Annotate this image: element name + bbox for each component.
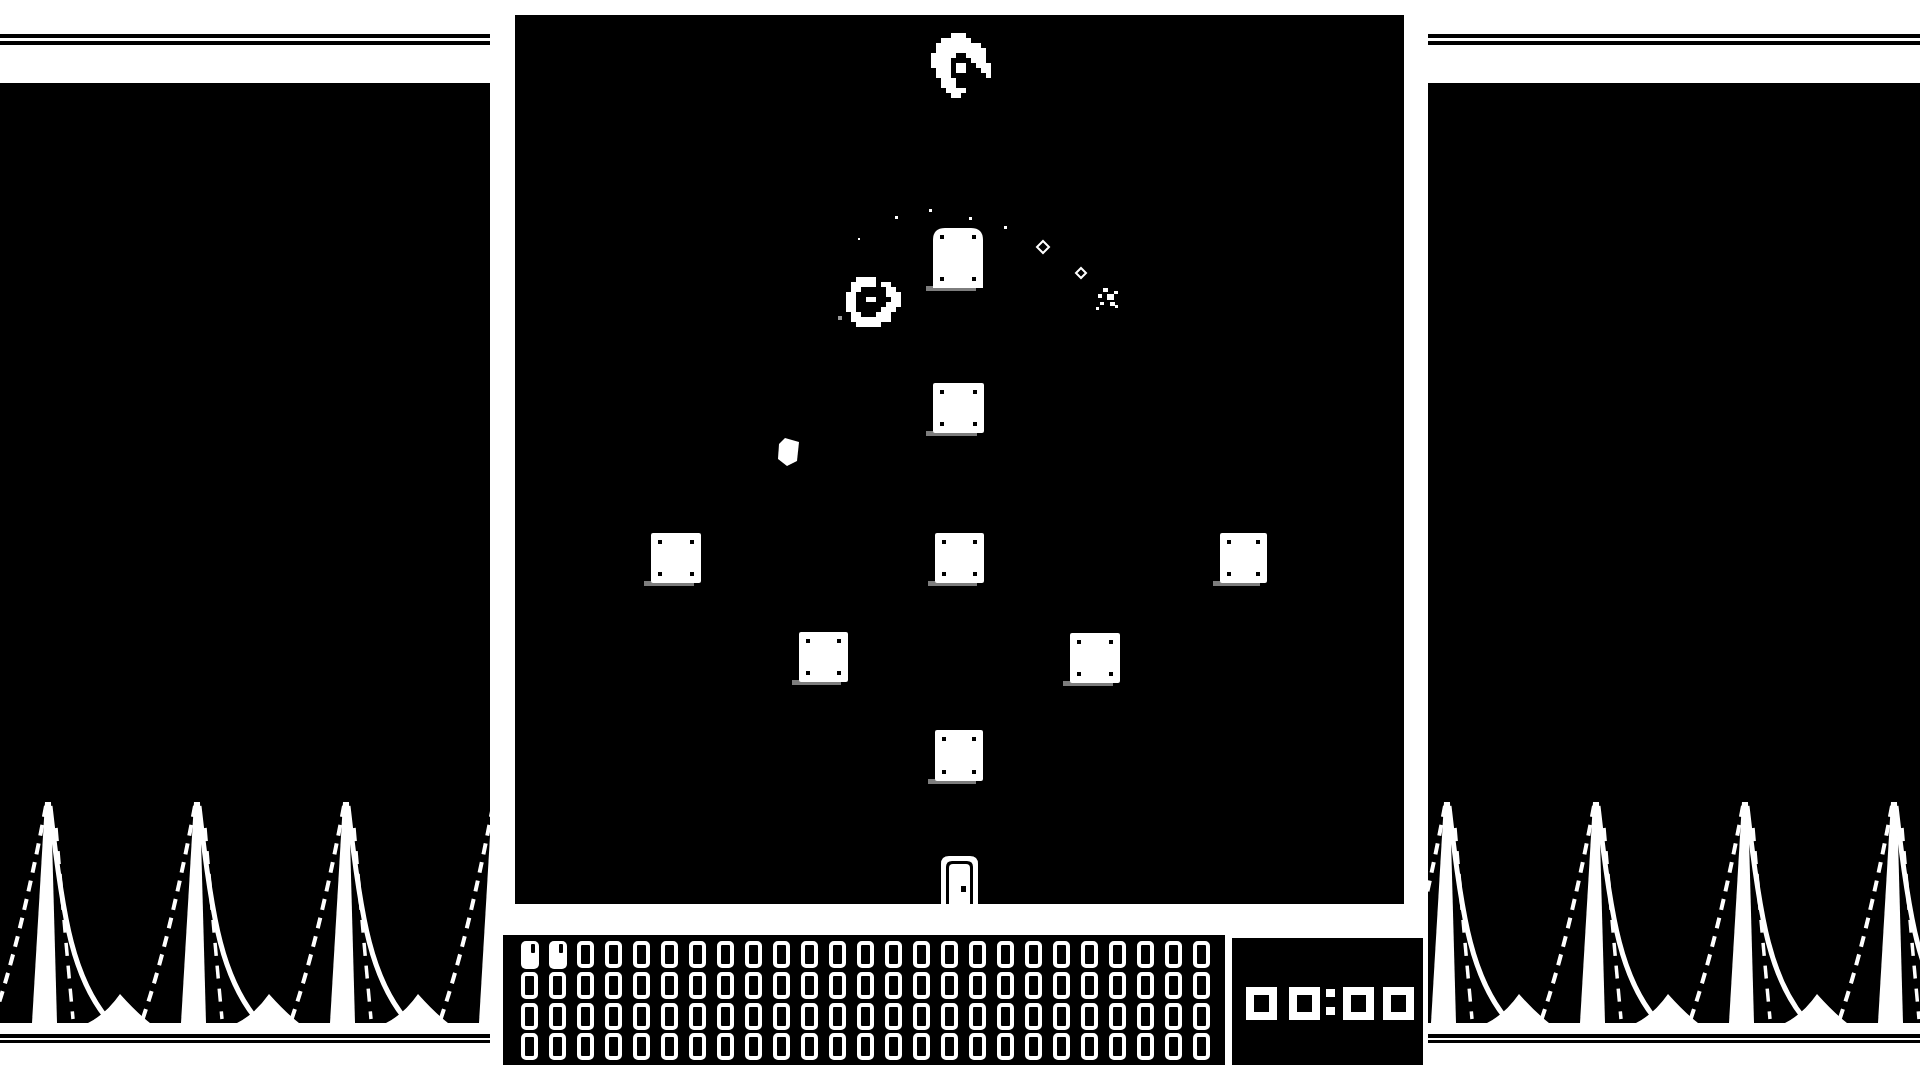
pixel bbox=[871, 282, 876, 287]
counter-zero bbox=[1137, 1033, 1154, 1060]
rivet bbox=[837, 671, 841, 675]
pixel bbox=[871, 322, 876, 327]
timer-colon-dot bbox=[1326, 989, 1335, 997]
game-screen: 00:00 bbox=[0, 0, 1920, 1080]
pixel bbox=[981, 53, 986, 58]
counter-zero bbox=[1053, 941, 1070, 968]
counter-zero-filled bbox=[521, 941, 539, 969]
top-stripe bbox=[1428, 34, 1920, 38]
counter-zero bbox=[773, 972, 790, 999]
pixel bbox=[946, 63, 951, 68]
counter-zero bbox=[1109, 1033, 1126, 1060]
counter-zero bbox=[913, 1033, 930, 1060]
block bbox=[1063, 633, 1120, 686]
counter-zero bbox=[717, 1003, 734, 1030]
pixel bbox=[856, 277, 861, 282]
pixel bbox=[941, 78, 946, 83]
counter-zero bbox=[913, 1003, 930, 1030]
timer-digit bbox=[1289, 987, 1320, 1020]
counter-zero bbox=[829, 941, 846, 968]
counter-zero bbox=[1025, 1003, 1042, 1030]
pixel bbox=[956, 48, 961, 53]
rivet bbox=[658, 572, 662, 576]
pixel bbox=[976, 53, 981, 58]
block bbox=[928, 730, 983, 784]
pixel bbox=[866, 297, 871, 302]
pixel bbox=[891, 297, 896, 302]
counter-zero bbox=[997, 1033, 1014, 1060]
pixel bbox=[891, 307, 896, 312]
pixel bbox=[871, 297, 876, 302]
counter-zero bbox=[1053, 1033, 1070, 1060]
spike-mountains bbox=[0, 83, 490, 1023]
rivet bbox=[1256, 540, 1260, 544]
pixel bbox=[931, 63, 936, 68]
spike-inner-dash bbox=[205, 828, 222, 1019]
door-leaf bbox=[949, 864, 970, 904]
counter-zero bbox=[857, 972, 874, 999]
pixel bbox=[951, 78, 956, 83]
pixel bbox=[931, 58, 936, 63]
rivet bbox=[942, 540, 946, 544]
rivet bbox=[690, 540, 694, 544]
bottom-stripe bbox=[0, 1040, 490, 1044]
pixel bbox=[851, 317, 856, 322]
pixel bbox=[966, 53, 971, 58]
pixel bbox=[891, 302, 896, 307]
pixel bbox=[956, 68, 961, 73]
counter-zero bbox=[745, 972, 762, 999]
counter-zero bbox=[549, 972, 566, 999]
rivet bbox=[940, 390, 944, 394]
counter-zero bbox=[689, 972, 706, 999]
sparkle-star bbox=[1096, 288, 1118, 310]
rivet bbox=[1256, 572, 1260, 576]
counter-zero bbox=[1081, 972, 1098, 999]
pixel bbox=[881, 282, 886, 287]
counter-zero bbox=[1193, 1033, 1210, 1060]
spike-mountains bbox=[1428, 83, 1920, 1023]
counter-zero bbox=[689, 941, 706, 968]
pixel bbox=[936, 48, 941, 53]
counter-zero bbox=[633, 1003, 650, 1030]
counter-zero bbox=[997, 941, 1014, 968]
pixel bbox=[966, 43, 971, 48]
pixel bbox=[966, 38, 971, 43]
spike-inner-dash bbox=[1753, 828, 1770, 1019]
pixel bbox=[851, 292, 856, 297]
pixel bbox=[861, 282, 866, 287]
pixel bbox=[936, 68, 941, 73]
pixel bbox=[961, 48, 966, 53]
spike bbox=[440, 802, 490, 1023]
pixel bbox=[971, 43, 976, 48]
pixel bbox=[941, 53, 946, 58]
pixel bbox=[846, 307, 851, 312]
counter-zero bbox=[941, 1003, 958, 1030]
counter-zero bbox=[773, 1003, 790, 1030]
pixel bbox=[846, 302, 851, 307]
pixel bbox=[956, 38, 961, 43]
pixel bbox=[1096, 307, 1099, 310]
rivet bbox=[1077, 640, 1081, 644]
pixel bbox=[1114, 291, 1118, 294]
particle-dot bbox=[858, 238, 860, 240]
pixel bbox=[936, 53, 941, 58]
counter-zero bbox=[745, 1003, 762, 1030]
counter-zero bbox=[913, 972, 930, 999]
counter-zero bbox=[1053, 972, 1070, 999]
counter-zero bbox=[661, 1003, 678, 1030]
counter-zero bbox=[745, 1033, 762, 1060]
rivet bbox=[942, 572, 946, 576]
spike bbox=[291, 802, 448, 1023]
pixel bbox=[856, 287, 861, 292]
pixel bbox=[961, 68, 966, 73]
pixel bbox=[851, 287, 856, 292]
pixel bbox=[936, 43, 941, 48]
debris-chunk bbox=[778, 438, 799, 466]
counter-zero bbox=[1193, 972, 1210, 999]
door-knob bbox=[961, 886, 966, 892]
pixel bbox=[981, 58, 986, 63]
counter-zero bbox=[969, 941, 986, 968]
counter-zero bbox=[1081, 941, 1098, 968]
counter-zero bbox=[521, 972, 538, 999]
particle-dot bbox=[895, 216, 898, 219]
timer-value: 00:00 bbox=[1232, 938, 1233, 939]
counter-zero bbox=[577, 1033, 594, 1060]
spike bbox=[1690, 802, 1847, 1023]
pixel bbox=[966, 48, 971, 53]
counter-zero bbox=[605, 941, 622, 968]
counter-zero bbox=[969, 972, 986, 999]
spike-right-edge bbox=[348, 806, 408, 1022]
spike bbox=[142, 802, 299, 1023]
pixel bbox=[851, 297, 856, 302]
pixel bbox=[851, 312, 856, 317]
counter-zero bbox=[577, 941, 594, 968]
block bbox=[644, 533, 701, 586]
pixel bbox=[961, 33, 966, 38]
pixel bbox=[956, 43, 961, 48]
pixel bbox=[881, 317, 886, 322]
counter-zero bbox=[801, 941, 818, 968]
particle-dot bbox=[929, 209, 932, 212]
rivet bbox=[690, 572, 694, 576]
pixel bbox=[971, 58, 976, 63]
counter-zero bbox=[1109, 1003, 1126, 1030]
pixel bbox=[946, 53, 951, 58]
rivet bbox=[973, 572, 977, 576]
counter-zero bbox=[969, 1033, 986, 1060]
spike-right-edge bbox=[1449, 806, 1509, 1022]
top-stripe bbox=[1428, 41, 1920, 45]
timer-digit bbox=[1246, 987, 1277, 1020]
faded-particle-dot bbox=[838, 316, 842, 320]
counter-zero bbox=[577, 1003, 594, 1030]
pixel bbox=[961, 43, 966, 48]
pixel bbox=[946, 88, 951, 93]
pixel bbox=[931, 53, 936, 58]
pixel bbox=[956, 63, 961, 68]
counter-zero bbox=[1053, 1003, 1070, 1030]
counter-zero bbox=[745, 941, 762, 968]
pixel bbox=[941, 73, 946, 78]
rivet bbox=[972, 235, 976, 239]
counter-zero bbox=[773, 941, 790, 968]
pixel bbox=[936, 63, 941, 68]
rivet bbox=[973, 422, 977, 426]
counter-zero bbox=[1081, 1003, 1098, 1030]
counter-zero bbox=[857, 1033, 874, 1060]
pixel bbox=[851, 307, 856, 312]
particle-dot bbox=[1004, 226, 1007, 229]
pixel bbox=[886, 287, 891, 292]
pixel bbox=[946, 78, 951, 83]
pixel bbox=[946, 68, 951, 73]
pixel bbox=[941, 58, 946, 63]
pixel bbox=[876, 322, 881, 327]
pixel bbox=[941, 63, 946, 68]
counter-zero bbox=[997, 972, 1014, 999]
counter-zero bbox=[661, 972, 678, 999]
counter-zero bbox=[829, 1003, 846, 1030]
pixel bbox=[941, 68, 946, 73]
tombstone-block bbox=[926, 228, 983, 291]
counter-zero bbox=[941, 1033, 958, 1060]
counter-zero bbox=[801, 972, 818, 999]
counter-zero bbox=[1137, 972, 1154, 999]
rivet bbox=[1227, 540, 1231, 544]
counter-zero bbox=[885, 1003, 902, 1030]
rivet bbox=[806, 639, 810, 643]
pixel bbox=[866, 282, 871, 287]
rivet bbox=[940, 235, 944, 239]
spike-right-edge bbox=[1598, 806, 1658, 1022]
counter-zero bbox=[941, 972, 958, 999]
spike-right-edge bbox=[50, 806, 110, 1022]
pixel bbox=[871, 277, 876, 282]
left-decor-panel bbox=[0, 83, 490, 1023]
counter-zero bbox=[1137, 1003, 1154, 1030]
pixel bbox=[1103, 288, 1108, 292]
death-counter-panel bbox=[503, 935, 1225, 1065]
pixel bbox=[956, 33, 961, 38]
counter-zero bbox=[969, 1003, 986, 1030]
counter-zero bbox=[913, 941, 930, 968]
game-canvas bbox=[515, 15, 1404, 904]
pixel bbox=[961, 38, 966, 43]
counter-zero bbox=[1109, 972, 1126, 999]
counter-zero bbox=[717, 1033, 734, 1060]
pixel bbox=[951, 43, 956, 48]
particle-dot bbox=[969, 217, 972, 220]
counter-zero bbox=[773, 1033, 790, 1060]
counter-zero bbox=[1025, 1033, 1042, 1060]
pixel bbox=[886, 312, 891, 317]
pixel bbox=[886, 302, 891, 307]
timer-panel: 00:00 bbox=[1232, 938, 1423, 1065]
counter-zero bbox=[717, 972, 734, 999]
pixel bbox=[886, 282, 891, 287]
rivet bbox=[972, 737, 976, 741]
top-stripe bbox=[0, 41, 490, 45]
counter-zero bbox=[661, 1033, 678, 1060]
player-character bbox=[846, 277, 901, 327]
pixel bbox=[971, 48, 976, 53]
pixel bbox=[951, 93, 956, 98]
pixel bbox=[1100, 302, 1104, 305]
pixel bbox=[986, 73, 991, 78]
counter-zero-filled bbox=[549, 941, 567, 969]
pixel bbox=[886, 317, 891, 322]
pixel bbox=[866, 322, 871, 327]
pixel bbox=[981, 48, 986, 53]
pixel bbox=[961, 63, 966, 68]
spike bbox=[0, 802, 150, 1023]
rivet bbox=[942, 737, 946, 741]
pixel bbox=[866, 317, 871, 322]
spike-inner-dash bbox=[1455, 828, 1472, 1019]
counter-zero bbox=[829, 972, 846, 999]
counter-zero bbox=[857, 941, 874, 968]
pixel bbox=[856, 322, 861, 327]
counter-zero bbox=[1165, 1003, 1182, 1030]
spike-inner-dash bbox=[1902, 828, 1919, 1019]
rivet bbox=[972, 770, 976, 774]
pixel bbox=[946, 83, 951, 88]
pixel bbox=[886, 307, 891, 312]
block bbox=[1213, 533, 1267, 586]
pixel bbox=[941, 38, 946, 43]
boss-creature bbox=[931, 33, 991, 98]
counter-zero bbox=[1025, 972, 1042, 999]
spike-right-edge bbox=[1747, 806, 1807, 1022]
rivet bbox=[1109, 672, 1113, 676]
pixel bbox=[956, 93, 961, 98]
counter-zero bbox=[1165, 972, 1182, 999]
counter-zero bbox=[661, 941, 678, 968]
rivet bbox=[940, 422, 944, 426]
counter-zero bbox=[633, 941, 650, 968]
counter-zero bbox=[1081, 1033, 1098, 1060]
pixel bbox=[976, 48, 981, 53]
pixel bbox=[876, 312, 881, 317]
pixel bbox=[951, 88, 956, 93]
pixel bbox=[881, 312, 886, 317]
counter-zero bbox=[801, 1033, 818, 1060]
bottom-stripe bbox=[1428, 1034, 1920, 1038]
play-field[interactable] bbox=[515, 15, 1404, 904]
counter-zero bbox=[1193, 941, 1210, 968]
pixel bbox=[936, 58, 941, 63]
exit-door bbox=[941, 856, 978, 904]
counter-zero bbox=[1137, 941, 1154, 968]
rivet bbox=[1227, 572, 1231, 576]
pixel bbox=[951, 33, 956, 38]
pixel bbox=[866, 277, 871, 282]
bottom-stripe bbox=[0, 1034, 490, 1038]
pixel bbox=[986, 68, 991, 73]
counter-zero bbox=[1109, 941, 1126, 968]
pixel bbox=[946, 58, 951, 63]
pixel bbox=[951, 83, 956, 88]
rivet bbox=[940, 277, 944, 281]
pixel bbox=[851, 282, 856, 287]
counter-zero bbox=[1165, 941, 1182, 968]
pixel bbox=[1098, 294, 1102, 298]
pixel bbox=[941, 48, 946, 53]
pixel bbox=[946, 73, 951, 78]
pixel bbox=[851, 302, 856, 307]
pixel bbox=[846, 297, 851, 302]
pixel bbox=[891, 287, 896, 292]
pixel bbox=[876, 317, 881, 322]
pixel bbox=[951, 38, 956, 43]
pixel bbox=[986, 63, 991, 68]
spike-inner-dash bbox=[354, 828, 371, 1019]
pixel bbox=[861, 277, 866, 282]
pixel bbox=[976, 43, 981, 48]
block bbox=[926, 383, 984, 436]
pixel bbox=[961, 88, 966, 93]
rivet bbox=[806, 671, 810, 675]
counter-zero bbox=[605, 972, 622, 999]
rivet bbox=[837, 639, 841, 643]
pixel bbox=[871, 317, 876, 322]
spike bbox=[1428, 802, 1549, 1023]
counter-zero bbox=[689, 1003, 706, 1030]
pixel bbox=[936, 73, 941, 78]
counter-zero bbox=[1025, 941, 1042, 968]
sparkle-diamond bbox=[1076, 268, 1086, 278]
pixel bbox=[1107, 294, 1114, 300]
spike bbox=[1541, 802, 1698, 1023]
counter-zero bbox=[633, 1033, 650, 1060]
counter-zero bbox=[941, 941, 958, 968]
spike-inner-dash bbox=[1604, 828, 1621, 1019]
pixel bbox=[881, 307, 886, 312]
pixel bbox=[971, 53, 976, 58]
counter-zero bbox=[689, 1033, 706, 1060]
rivet bbox=[658, 540, 662, 544]
spike bbox=[1839, 802, 1920, 1023]
spike-inner-dash bbox=[56, 828, 73, 1019]
counter-zero bbox=[549, 1033, 566, 1060]
pixel bbox=[1115, 305, 1118, 308]
counter-zero bbox=[885, 1033, 902, 1060]
pixel bbox=[846, 292, 851, 297]
pixel bbox=[886, 292, 891, 297]
counter-zero bbox=[1193, 1003, 1210, 1030]
right-decor-panel bbox=[1428, 83, 1920, 1023]
pixel bbox=[956, 88, 961, 93]
counter-zero bbox=[633, 972, 650, 999]
rivet bbox=[942, 770, 946, 774]
counter-zero bbox=[717, 941, 734, 968]
pixel bbox=[891, 292, 896, 297]
pixel bbox=[896, 292, 901, 297]
top-stripe bbox=[0, 34, 490, 38]
zero-notch bbox=[559, 944, 563, 953]
counter-zero bbox=[577, 972, 594, 999]
pixel bbox=[946, 43, 951, 48]
pixel bbox=[941, 83, 946, 88]
rivet bbox=[973, 540, 977, 544]
counter-zero bbox=[605, 1033, 622, 1060]
rivet bbox=[972, 277, 976, 281]
